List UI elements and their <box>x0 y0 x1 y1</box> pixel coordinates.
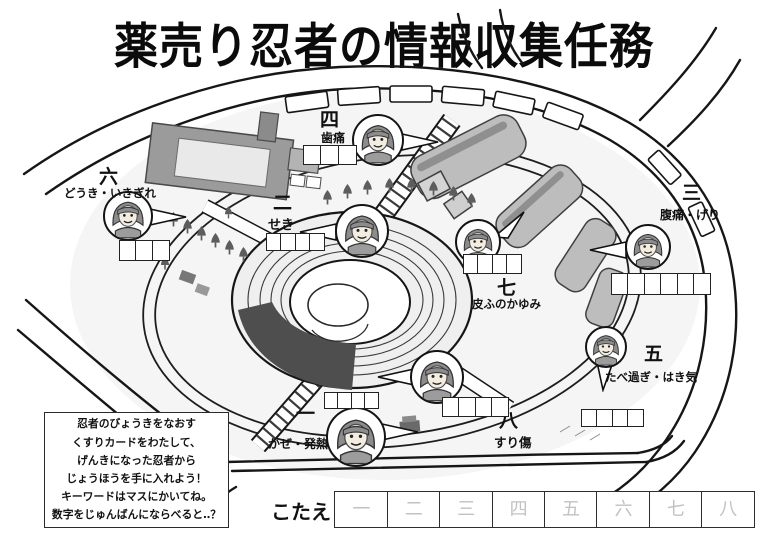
instruction-line: 数字をじゅんばんにならべると‥？ <box>52 506 221 524</box>
worksheet-page: 薬売り忍者の情報収集任務 一 かぜ・発熱 二 せき 三 腹痛・げり 四 歯痛 五… <box>0 0 768 543</box>
station-1-boxes <box>324 392 378 409</box>
station-3-symptom: 腹痛・げり <box>660 209 720 221</box>
station-4-boxes <box>303 145 355 165</box>
answer-box[interactable] <box>660 273 678 295</box>
answer-cells: 一二三四五六七八 <box>336 491 755 528</box>
answer-cell[interactable]: 一 <box>334 491 388 528</box>
ninja-icon <box>625 224 671 270</box>
station-2-boxes <box>266 233 324 251</box>
station-5-boxes <box>581 409 643 427</box>
answer-box[interactable] <box>442 397 460 417</box>
speech-bubble-tail <box>148 206 188 228</box>
station-2-symptom: せき <box>268 219 294 232</box>
answer-cell[interactable]: 三 <box>439 491 493 528</box>
ninja-icon <box>585 326 627 368</box>
station-6-symptom: どうき・いきぎれ <box>64 188 156 200</box>
answer-box[interactable] <box>135 240 153 261</box>
answer-box[interactable] <box>364 392 379 409</box>
instruction-line: げんきになった忍者から <box>77 452 196 470</box>
answer-cell[interactable]: 四 <box>492 491 546 528</box>
answer-label: こたえ <box>271 496 331 525</box>
ninja-icon <box>335 204 389 258</box>
instruction-box: 忍者のびょうきをなおすくすりカードをわたして、げんきになった忍者からじょうほうを… <box>44 412 229 528</box>
station-7-boxes <box>463 254 521 274</box>
answer-box[interactable] <box>506 254 522 274</box>
answer-box[interactable] <box>152 240 170 261</box>
station-6-number: 六 <box>99 168 118 187</box>
station-7-number: 七 <box>497 279 516 298</box>
answer-box[interactable] <box>303 145 322 165</box>
answer-box[interactable] <box>309 233 325 251</box>
answer-box[interactable] <box>338 145 357 165</box>
speech-bubble-tail <box>380 421 420 443</box>
instruction-line: キーワードはマスにかいてね。 <box>61 488 212 506</box>
speech-bubble-tail <box>588 239 628 261</box>
station-1-number: 一 <box>296 405 315 424</box>
answer-cell[interactable]: 八 <box>701 491 755 528</box>
answer-box[interactable] <box>119 240 137 261</box>
answer-box[interactable] <box>475 397 493 417</box>
instruction-line: じょうほうを手に入れよう！ <box>66 470 206 488</box>
station-3-boxes <box>611 273 709 295</box>
station-1-symptom: かぜ・発熱 <box>268 438 328 450</box>
answer-box[interactable] <box>491 397 509 417</box>
ninja-icon <box>410 350 464 404</box>
answer-cell[interactable]: 五 <box>544 491 598 528</box>
station-3-number: 三 <box>682 184 701 203</box>
answer-box[interactable] <box>458 397 476 417</box>
answer-cell[interactable]: 六 <box>596 491 650 528</box>
station-5-symptom: たべ過ぎ・はき気 <box>605 372 697 384</box>
answer-box[interactable] <box>644 273 662 295</box>
answer-box[interactable] <box>611 273 629 295</box>
station-4-symptom: 歯痛 <box>321 132 345 144</box>
station-8-boxes <box>442 397 508 417</box>
answer-box[interactable] <box>693 273 711 295</box>
answer-cell[interactable]: 二 <box>387 491 441 528</box>
station-5-number: 五 <box>644 345 663 364</box>
station-8-symptom: すり傷 <box>494 437 532 450</box>
answer-box[interactable] <box>677 273 695 295</box>
station-7-symptom: 皮ふのかゆみ <box>472 299 541 311</box>
answer-box[interactable] <box>627 273 645 295</box>
station-6-boxes <box>119 240 168 261</box>
instruction-line: くすりカードをわたして、 <box>72 434 201 452</box>
answer-box[interactable] <box>320 145 339 165</box>
ninja-icon <box>352 114 404 166</box>
station-2-number: 二 <box>273 194 292 213</box>
station-4-number: 四 <box>320 111 339 130</box>
speech-bubble-tail <box>400 131 440 153</box>
instruction-line: 忍者のびょうきをなおす <box>77 415 196 433</box>
answer-box[interactable] <box>627 409 644 427</box>
ninja-icon <box>326 407 386 467</box>
answer-cell[interactable]: 七 <box>649 491 703 528</box>
